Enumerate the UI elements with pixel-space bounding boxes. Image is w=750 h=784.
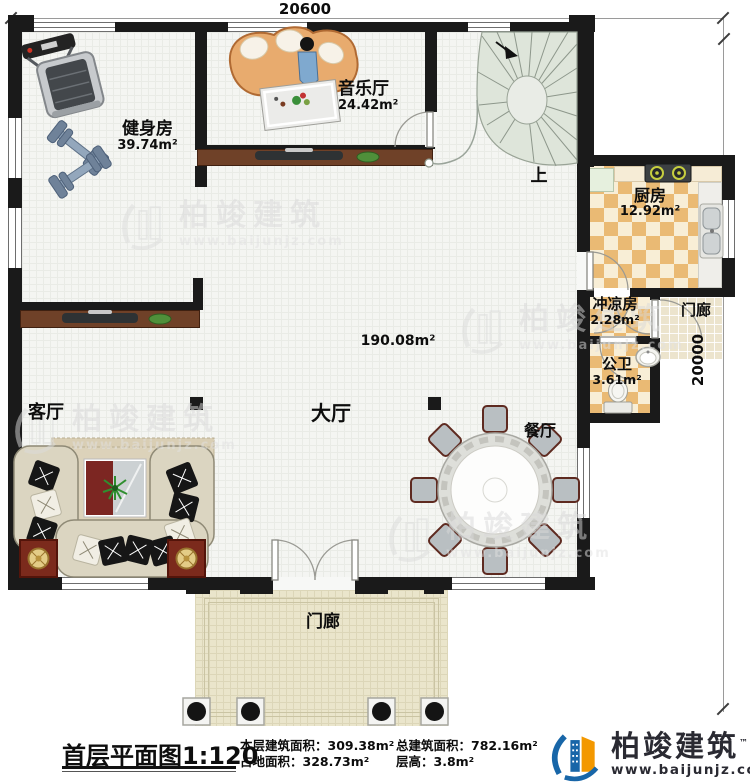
- room-label-porch-right: 门廊: [668, 302, 724, 319]
- column-hall-right: [428, 397, 441, 410]
- stat-total-area: 总建筑面积：782.16m²: [396, 738, 538, 754]
- stats-column-2: 总建筑面积：782.16m² 层高：3.8m²: [396, 738, 538, 770]
- kitchen-counter-top: [614, 166, 722, 182]
- entrance-door-opening: [273, 577, 355, 590]
- window-top-2: [228, 22, 307, 32]
- wall-music-divider: [425, 22, 437, 113]
- brand-logo-icon: [548, 727, 604, 783]
- dimension-top-label: 20600: [270, 1, 340, 18]
- trademark-mark: ™: [739, 739, 750, 749]
- room-label-living: 客厅: [28, 403, 76, 423]
- title-bar: 首层平面图1:120 本层建筑面积：309.38m² 占地面积：328.73m²…: [0, 727, 750, 784]
- wall-bath-divider-a: [577, 336, 600, 344]
- wall-gym-divider: [195, 22, 207, 150]
- brand-url: www.baijunjz.com: [611, 764, 750, 778]
- brand-logo: 柏竣建筑™ www.baijunjz.com: [548, 727, 750, 783]
- room-label-porch-bottom: 门廊: [294, 613, 352, 632]
- room-label-hall: 大厅: [303, 402, 359, 424]
- window-bottom-dining: [452, 577, 545, 590]
- window-right-dining: [577, 448, 590, 518]
- wall-right-stair: [577, 22, 594, 167]
- kitchen-counter-right: [698, 182, 722, 288]
- wall-gym-divider2: [195, 166, 207, 187]
- room-label-gym: 健身房 39.74m²: [100, 120, 195, 154]
- column-hall-left: [190, 397, 203, 410]
- dimension-right-label: 20000: [690, 325, 707, 395]
- window-left-1: [8, 118, 22, 178]
- stats-column-1: 本层建筑面积：309.38m² 占地面积：328.73m²: [240, 738, 394, 770]
- room-label-toilet: 公卫 3.61m²: [582, 356, 652, 387]
- kitchen-door-opening: [577, 252, 590, 290]
- wall-porch-pier-right: [424, 577, 444, 594]
- room-label-kitchen: 厨房 12.92m²: [610, 187, 690, 219]
- title-underline2: [62, 771, 236, 772]
- wall-right-mid: [577, 423, 590, 448]
- music-door-opening: [425, 112, 437, 147]
- wall-door-pier-right: [355, 577, 388, 594]
- room-label-dining: 餐厅: [515, 422, 565, 440]
- stat-floor-height: 层高：3.8m²: [396, 754, 538, 770]
- dimension-line-top: [10, 18, 723, 19]
- brand-name: 柏竣建筑™: [611, 732, 750, 761]
- wall-kitchen-left: [577, 167, 590, 252]
- room-label-shower: 冲凉房 2.28m²: [578, 296, 652, 327]
- window-top-3: [468, 22, 510, 32]
- hall-area-label: 190.08m²: [348, 334, 448, 350]
- wall-porch-pier-left: [186, 577, 210, 594]
- stat-land-area: 占地面积：328.73m²: [240, 754, 394, 770]
- window-bottom-living: [62, 577, 148, 590]
- title-underline: [62, 766, 236, 769]
- stat-floor-area: 本层建筑面积：309.38m²: [240, 738, 394, 754]
- window-top-1: [34, 22, 115, 32]
- dimension-line-right: [723, 18, 724, 712]
- wall-right-low: [577, 518, 590, 590]
- living-tv-cabinet: [20, 310, 200, 328]
- wall-door-pier-left: [240, 577, 273, 594]
- stairs-up-label: 上: [527, 167, 551, 186]
- window-left-2: [8, 208, 22, 268]
- dim-tick: [718, 33, 731, 46]
- window-kitchen-sink: [722, 200, 735, 258]
- music-tv-cabinet: [197, 149, 433, 166]
- wall-toilet-bottom: [577, 413, 660, 423]
- wall-gym-bottom: [8, 302, 200, 310]
- room-label-music: 音乐厅 24.42m²: [338, 80, 408, 114]
- floor-plan: 20600 20000: [0, 0, 750, 784]
- wall-kitchen-top: [577, 155, 735, 166]
